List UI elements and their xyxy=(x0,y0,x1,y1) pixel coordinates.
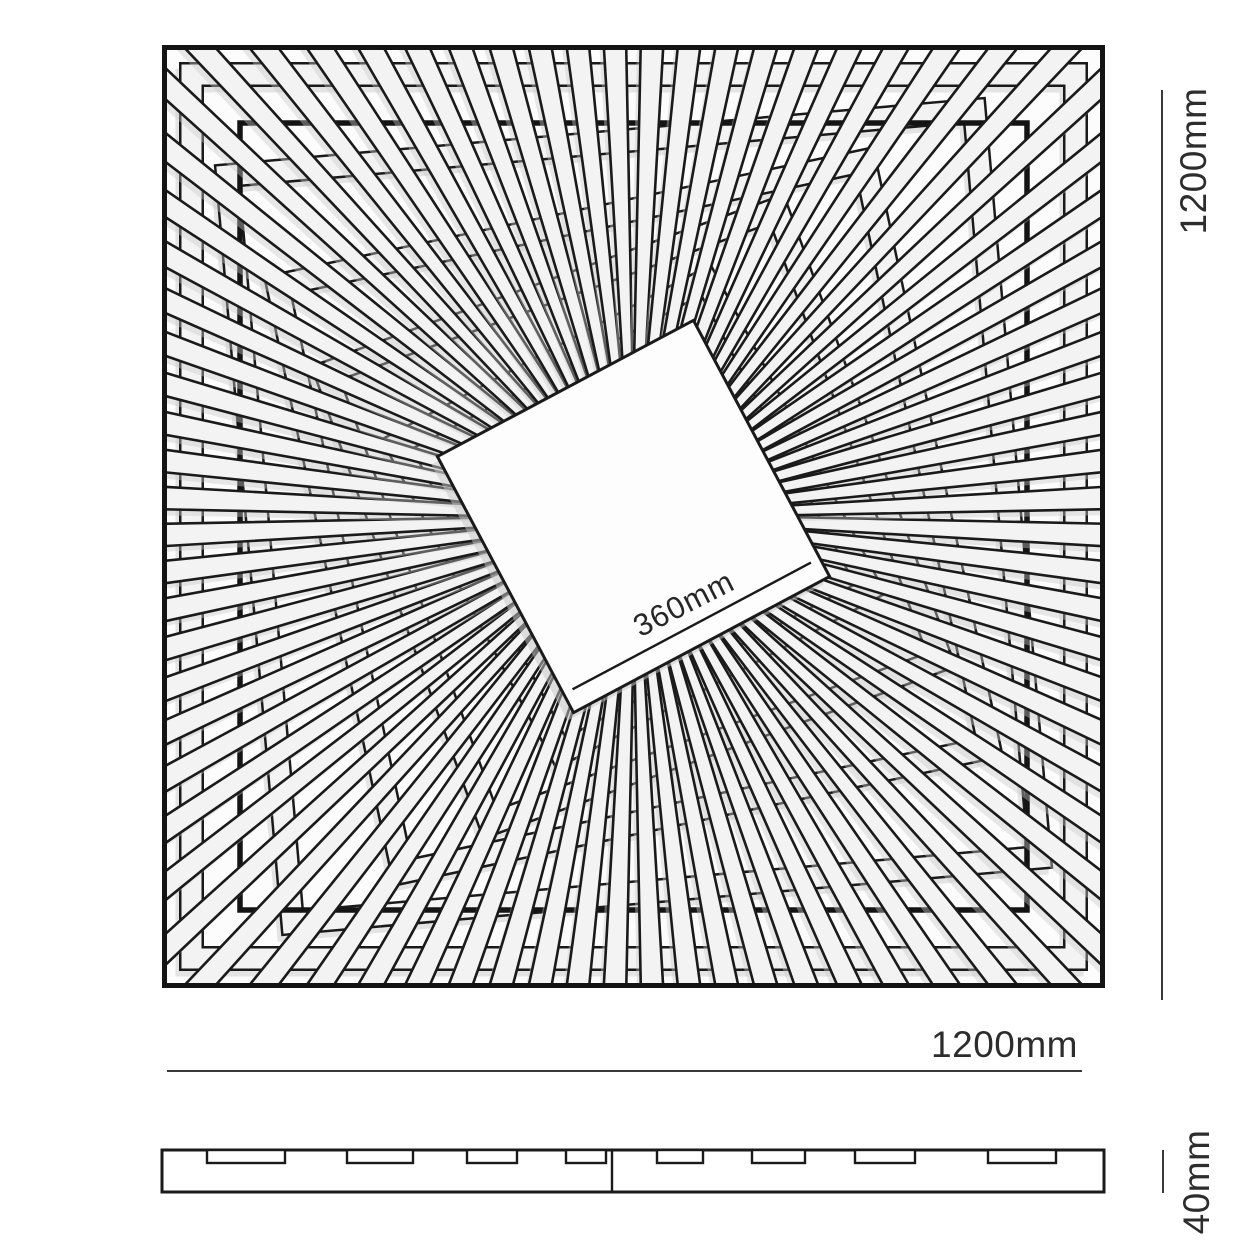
width-dimension-line xyxy=(167,1070,1082,1072)
profile-groove-4 xyxy=(657,1150,703,1163)
width-dimension-label: 1200mm xyxy=(738,1024,1078,1066)
profile-groove-5 xyxy=(752,1150,805,1163)
thickness-dimension-line xyxy=(1162,1150,1164,1193)
plan-view-drawing xyxy=(162,45,1105,988)
profile-groove-7 xyxy=(988,1150,1056,1163)
profile-groove-3 xyxy=(566,1150,606,1163)
profile-groove-0 xyxy=(207,1150,285,1163)
thickness-dimension-label: 40mm xyxy=(1176,1130,1218,1235)
height-dimension-line xyxy=(1161,90,1163,1000)
profile-groove-6 xyxy=(855,1150,915,1163)
side-profile-drawing xyxy=(0,1100,1250,1250)
height-dimension-label: 1200mm xyxy=(1173,88,1215,235)
profile-bar xyxy=(162,1150,1104,1192)
profile-groove-2 xyxy=(467,1150,517,1163)
panel-technical-drawing: 360mm 1200mm 1200mm 40mm xyxy=(0,0,1250,1250)
profile-groove-1 xyxy=(347,1150,413,1163)
plan-view xyxy=(162,45,1105,988)
